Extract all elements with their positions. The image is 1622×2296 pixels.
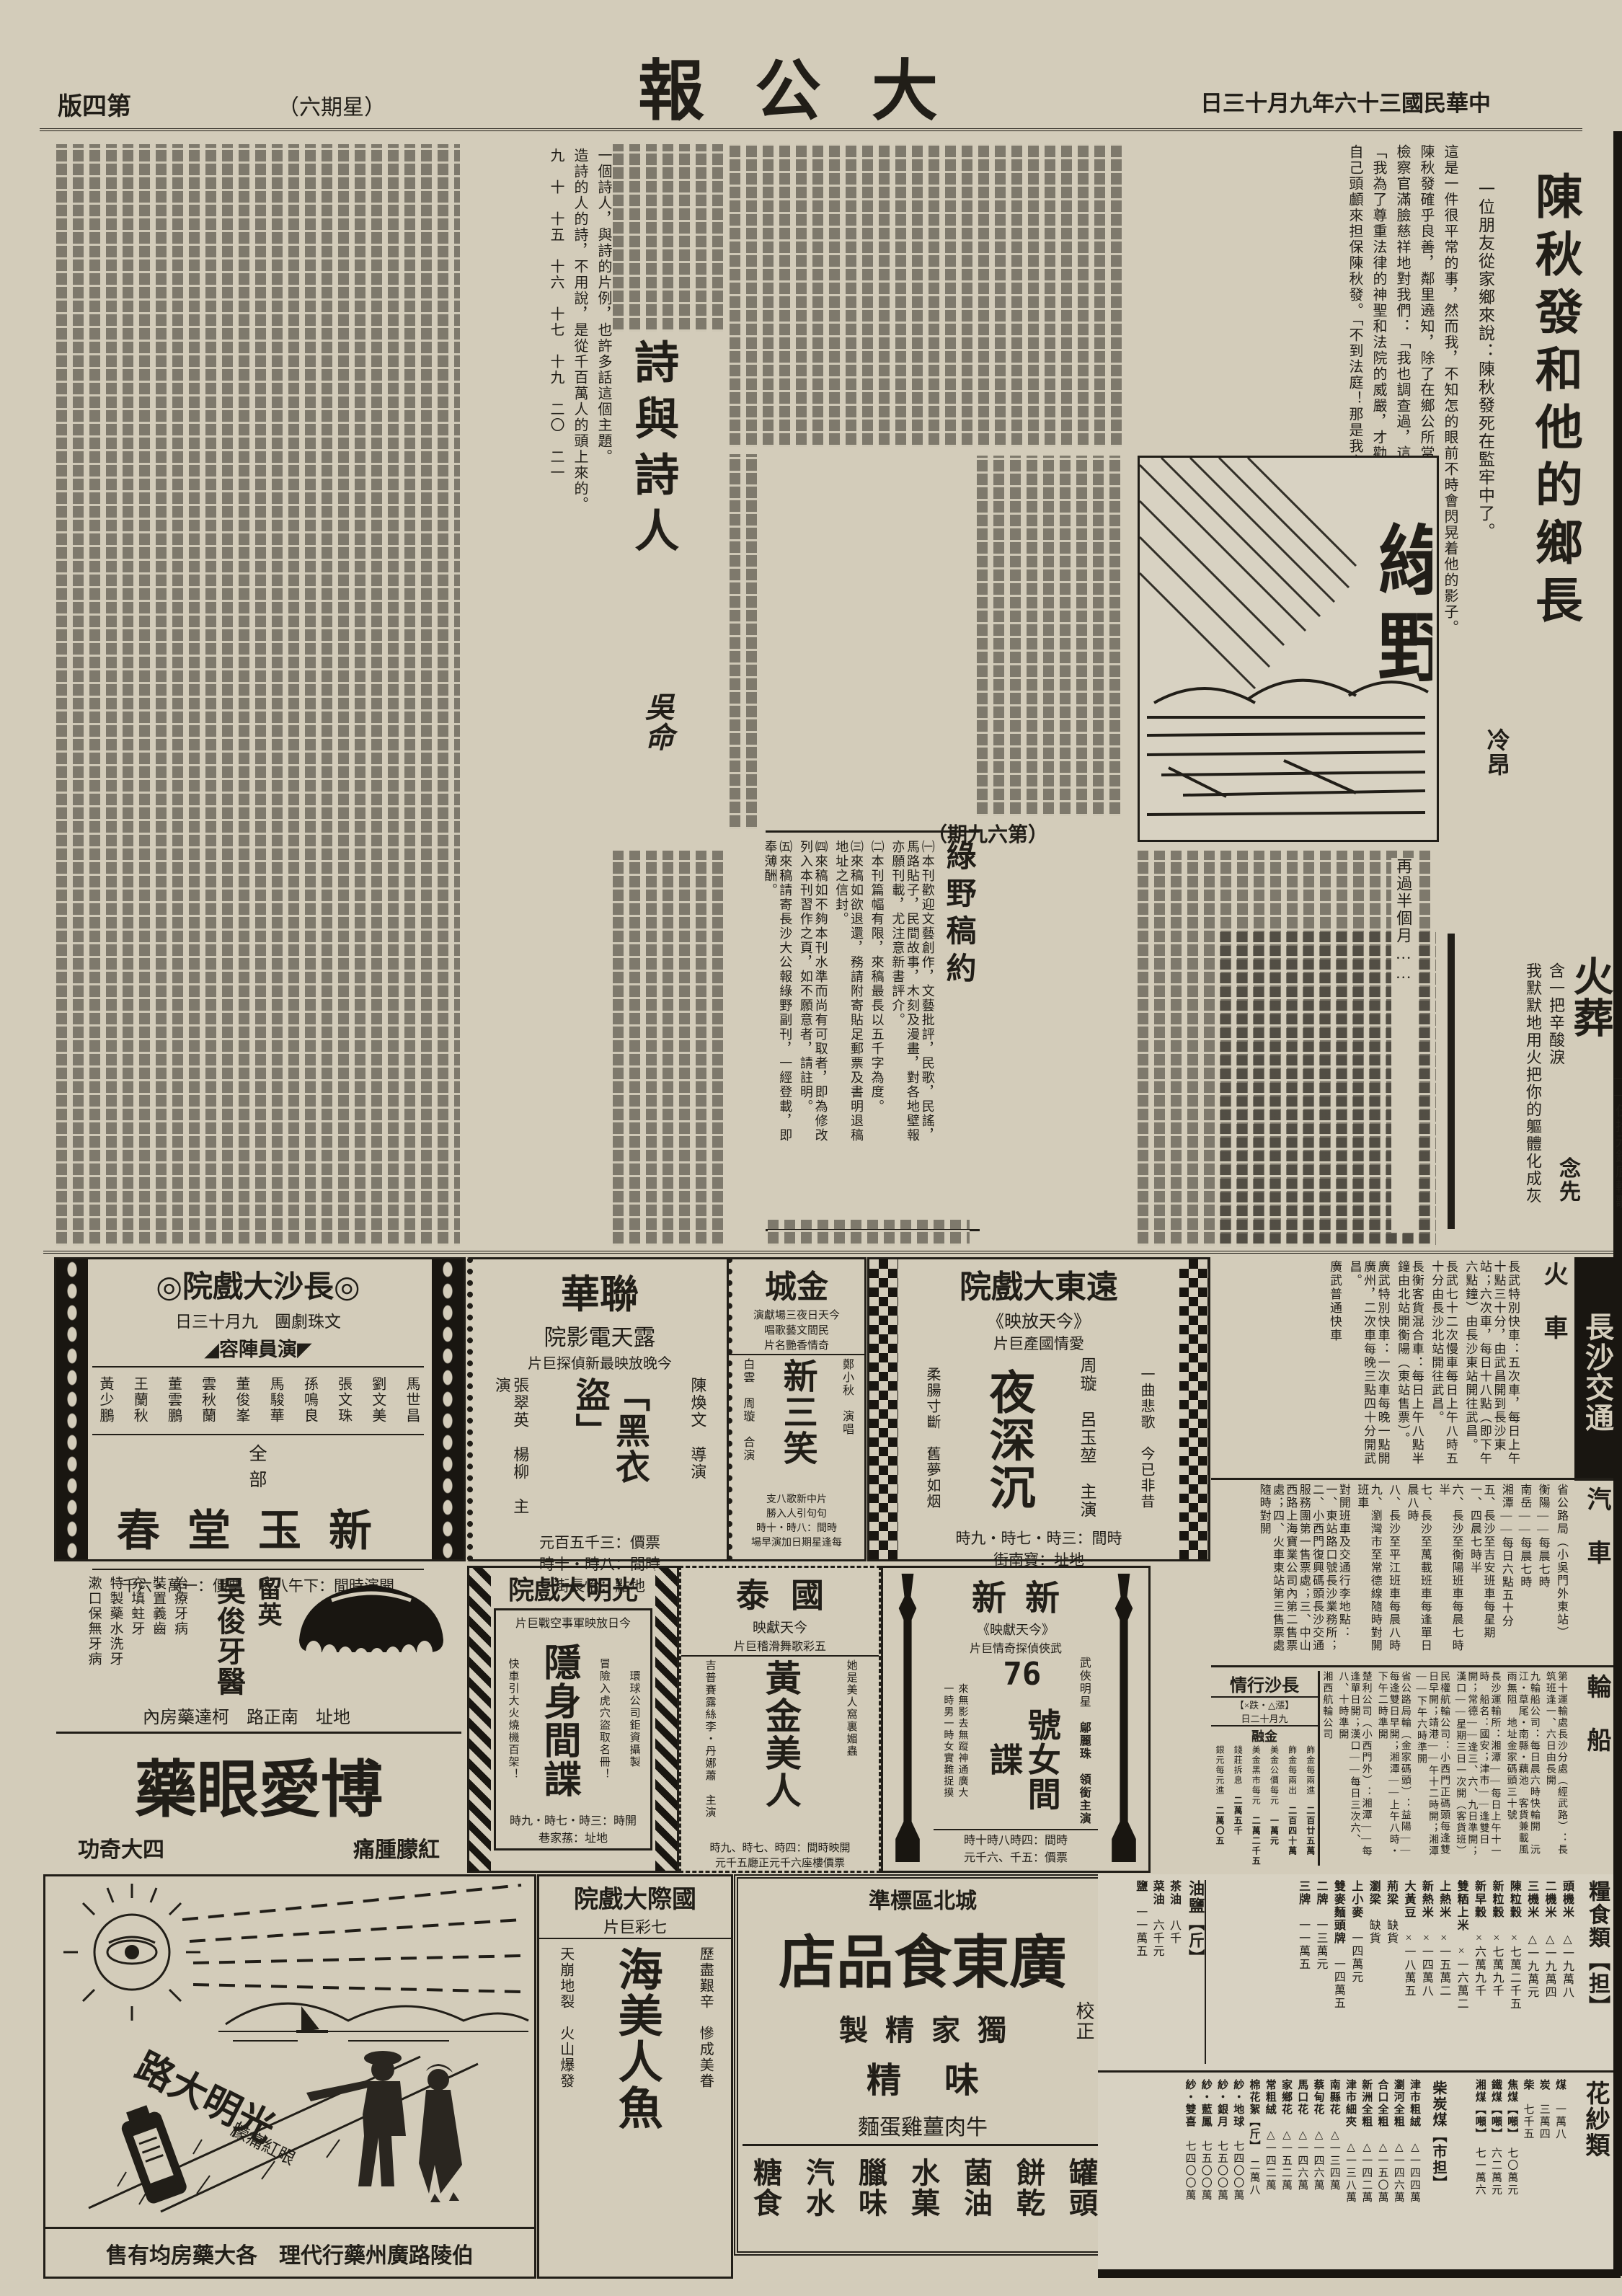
cast-member: 董俊峯 xyxy=(233,1372,249,1428)
commodity-price: ×一四萬八 xyxy=(1420,1932,1432,1998)
tagline: 民間文藝歌唱 xyxy=(729,1322,864,1337)
finance-entry-label: 錢莊拆息 xyxy=(1233,1745,1243,1786)
finance-entry-value: 一萬元 xyxy=(1269,1816,1279,1846)
poem-author-huozang: 念先 xyxy=(1555,1157,1580,1222)
ship-schedule-item: 第十運輸處長沙分處（經武路）：長筑班逢一、六日由長開 xyxy=(1544,1671,1567,1863)
commodity-name: 炭 xyxy=(1538,2079,1550,2091)
stars-credit: 白雲 周璇 合演 xyxy=(740,1358,753,1488)
cast-list: 馬世昌劉文美張文珠孫鳴良馬駿華董俊峯雲秋蘭董雲鵬王蘭秋黃少鵬 xyxy=(92,1372,424,1430)
commodity-name: 合口全粗 xyxy=(1377,2079,1388,2128)
commodity-price: 七一萬六 xyxy=(1474,2147,1486,2197)
commodity-name: 紗・藍鳳 xyxy=(1200,2079,1212,2128)
ad-jincheng-cinema: 金城 今天日夜三場獻演 民間文藝歌唱 奇情香艷名片 鄭小秋 演唱 新三笑 白雲 … xyxy=(727,1257,867,1561)
commodity-price: △一四六萬 xyxy=(1296,2128,1308,2191)
boai-product-name: 博愛眼藥 xyxy=(56,1739,461,1829)
bus-schedule-item: 七、長沙至萬載班車每逢單日晨八時 xyxy=(1404,1484,1431,1658)
film-note: 快車引大火燒機百架！ xyxy=(506,1631,518,1807)
troupe-and-date: 文珠劇團 九月十三日 xyxy=(92,1308,424,1332)
extra-showing-note: 每逢星期日加演早場 xyxy=(729,1535,864,1549)
stars-credit: 吉普賽露絲李・丹娜蕭 主演 xyxy=(703,1659,715,1836)
commodity-price: 八千 xyxy=(1168,1919,1180,1945)
commodity-price: 缺貨 xyxy=(1385,1919,1397,1945)
genre-label: 五彩歌舞滑稽巨片 xyxy=(681,1636,879,1657)
oil-price-entry: 茶油 八千 xyxy=(1167,1880,1180,2059)
ad-guangming-theatre: 光明大戲院 今日放映軍事空戰巨片 環球公司鉅資攝製 冒險入虎穴盜取名冊！ 隱身間… xyxy=(467,1566,679,1873)
store-specialty: 牛肉薑雞蛋麵 xyxy=(743,2109,1103,2146)
divider xyxy=(1211,1665,1613,1667)
ad-boai-illustration: 光明大路 眼紅痛朦 伯陵路廣州藥行代理 各大藥房均有售 xyxy=(43,1874,536,2279)
commodity-price: ×七萬九千 xyxy=(1490,1932,1502,1998)
commodity-name: 瀏梁 xyxy=(1368,1880,1380,1906)
dense-text-filler xyxy=(730,454,762,829)
commodity-price: 一三萬元 xyxy=(1315,1919,1327,1971)
divider xyxy=(92,1366,424,1368)
ad-changsha-theatre: ◎長沙大戲院◎ 文珠劇團 九月十三日 ◤演員陣容◢ 馬世昌劉文美張文珠孫鳴良馬駿… xyxy=(54,1257,466,1561)
dentist-service-item: 治療牙病 xyxy=(172,1576,187,1697)
commodity-name: 雙麥麵頭牌 xyxy=(1332,1880,1344,1945)
chen-continuation-column: 再過半個月…… xyxy=(1391,858,1415,1233)
boai-claim-left: 四大奇功 xyxy=(78,1832,164,1863)
theatre-name-text: 長沙大戲院 xyxy=(182,1271,334,1304)
cinema-name-jincheng: 金城 xyxy=(765,1269,828,1305)
film-tagline: 歷盡艱辛 慘成美眷 xyxy=(696,1946,713,2249)
commodity-price: 一四萬元 xyxy=(1350,1932,1362,1984)
cinema-name-guotai: 國泰 xyxy=(714,1577,846,1614)
luye-rule-item: ㈡本刊篇幅有限，來稿最長以五千字為度。 xyxy=(869,840,885,1150)
film-note: 環球公司鉅資攝製 xyxy=(627,1631,639,1807)
stars-credit: 周璇 呂玉堃 主演 xyxy=(1077,1357,1096,1519)
newspaper-page: 第四版 （星期六） 大公報 中華民國三十六年九月十三日 陳秋發和他的鄉長 一位朋… xyxy=(0,0,1622,2296)
commodity-name: 常粗絨 xyxy=(1264,2079,1276,2116)
finance-list: 飾金每兩進 二百廿五萬 飾金每兩出 二百四十萬 美金公價每元 一萬元 美金黑市每… xyxy=(1211,1745,1318,1868)
film-title-heiyidao: 「黑衣盜」 xyxy=(569,1377,648,1528)
star-credit: 鄭小秋 演唱 xyxy=(840,1358,853,1488)
store-item: 臘味 xyxy=(854,2158,887,2250)
ticket-price: 票價：五千、六千元 xyxy=(934,1848,1098,1865)
theatre-name-guangming: 光明大戲院 xyxy=(508,1576,638,1605)
commodity-price: 三萬四 xyxy=(1538,2104,1550,2140)
store-item: 菌油 xyxy=(959,2158,992,2250)
luye-rules-list: 綠野稿約 ㈠本刊歡迎文藝創作，文藝批評，民歌，民謠，馬路貼子，民間故事，木刻及漫… xyxy=(770,840,975,1200)
cast-member: 雲秋蘭 xyxy=(199,1372,216,1428)
cast-member: 馬駿華 xyxy=(267,1372,283,1428)
article-title-chen-qiufa: 陳秋發和他的鄉長 xyxy=(1527,172,1582,763)
statue-ornament xyxy=(887,1574,928,1862)
fuel-section-label: 柴炭煤【市担】 xyxy=(1430,2080,1446,2253)
market-title: 長沙行情 xyxy=(1211,1671,1318,1698)
grain-price-entry: 新粒穀 ×七萬九千 xyxy=(1489,1880,1502,2062)
film-title-text: 號女間諜 xyxy=(984,1693,1060,1826)
ship-schedule-item: 湘西航輪公司 xyxy=(1321,1671,1332,1863)
train-schedule-list: 長武特別快車：五次車，每日上午十點三十分，由武昌開到長沙東站；六次車，每日十八點… xyxy=(1217,1260,1520,1473)
dentist-address: 地址 南正路 柯達藥房內 xyxy=(143,1703,350,1728)
commodity-name: 雙粞上米 xyxy=(1455,1880,1468,1932)
ad-border-ornament xyxy=(1179,1259,1208,1559)
weekday-label: （星期六） xyxy=(278,89,386,121)
cotton-price-entry: 棉花絮【斤】 二萬八 xyxy=(1247,2079,1259,2258)
film-tagline: 她是美人窩裏媚蟲 xyxy=(844,1659,856,1836)
finance-entry-label: 美金公價每元 xyxy=(1269,1745,1279,1806)
film-title-mermaid: 海美人魚 xyxy=(609,1946,660,2256)
finance-entry-label: 美金黑市每元 xyxy=(1251,1745,1261,1806)
dentist-credential: 留英 xyxy=(253,1576,281,1662)
market-legend: 【漲△・跌×】 xyxy=(1211,1698,1318,1711)
finance-entry-value: 二萬五千 xyxy=(1233,1796,1243,1836)
store-item: 汽水 xyxy=(801,2158,834,2250)
grain-price-entry: 新早穀 ×六萬九千 xyxy=(1472,1880,1485,2062)
cotton-price-entry: 津市粗絨 △一四四萬 xyxy=(1408,2079,1420,2258)
genre-label: 愛情國產巨片 xyxy=(903,1332,1175,1354)
finance-entry-value: 二萬二千五 xyxy=(1251,1816,1261,1866)
cotton-price-entry: 津市細夾 △一三八萬 xyxy=(1344,2079,1356,2258)
dentist-service-item: 充填蛀牙 xyxy=(128,1576,144,1697)
finance-entry: 飾金每兩進 二百廿五萬 xyxy=(1305,1745,1315,1866)
commodity-name: 家鄉花 xyxy=(1280,2079,1292,2116)
commodity-price: △一五二萬 xyxy=(1280,2128,1292,2191)
cotton-price-entry: 常粗絨 △一四二萬 xyxy=(1264,2079,1276,2258)
grain-price-entry: 二牌 一三萬元 xyxy=(1313,1880,1326,2062)
cotton-section-label: 花紗類 xyxy=(1581,2080,1609,2253)
grain-price-entry: 頭機米 △一九萬八 xyxy=(1560,1880,1573,2062)
commodity-price: △一三四萬 xyxy=(1329,2128,1340,2191)
ad-lianhua-cinema: 聯華 露天電影院 今晚放映最新偵探巨片 陳煥文 導演 「黑衣盜」 張翠英 楊柳 … xyxy=(467,1257,732,1561)
cotton-price-entry: 紗・銀月 七五〇〇萬 xyxy=(1215,2079,1228,2258)
luye-title-char-lv: 綠 xyxy=(1378,520,1432,604)
chen-body-column: 這是一件很平常的事，然而我，不知怎的眼前不時會閃晃着他的影子。 xyxy=(1441,144,1458,908)
showtimes: 時間：四時八時十時 xyxy=(934,1829,1098,1848)
dentist-name: 吳俊牙醫 xyxy=(212,1576,245,1713)
commodity-price: 缺貨 xyxy=(1368,1919,1380,1945)
commodity-price: △一九萬四 xyxy=(1543,1932,1556,1999)
ad-fareast-theatre: 遠東大戲院 《今天放映》 愛情國產巨片 一曲悲歌 今已非昔 周璇 呂玉堃 主演 … xyxy=(867,1257,1210,1561)
store-item: 水菓 xyxy=(906,2158,939,2250)
commodity-name: 蔡甸花 xyxy=(1313,2079,1324,2116)
cotton-price-entry: 蔡甸花 △一四六萬 xyxy=(1311,2079,1324,2258)
cotton-price-entry: 合口全粗 △一五〇萬 xyxy=(1375,2079,1388,2258)
commodity-name: 瀏河全粗 xyxy=(1393,2079,1404,2128)
page-number: 第四版 xyxy=(58,87,131,122)
luye-masthead-illustration: 綠 野 xyxy=(1138,456,1439,842)
grain-price-entry: 大黃豆 ×一八萬五 xyxy=(1401,1880,1414,2062)
commodity-price: 七〇萬元 xyxy=(1506,2147,1517,2197)
transport-banner-title: 長沙交通 xyxy=(1574,1257,1613,1481)
commodity-name: 菜油 xyxy=(1151,1880,1164,1906)
finance-entry-label: 飾金每兩進 xyxy=(1306,1745,1316,1796)
oil-price-entry: 菜油 六千元 xyxy=(1150,1880,1163,2059)
bus-schedule-item: 湘潭——每日六點五十分 xyxy=(1499,1484,1512,1658)
finance-entry: 美金公價每元 一萬元 xyxy=(1269,1745,1279,1866)
commodity-price: 一一萬五 xyxy=(1297,1919,1309,1971)
store-item: 罐頭 xyxy=(1064,2158,1097,2250)
dentist-service-item: 漱口保無牙病 xyxy=(86,1576,102,1697)
finance-entry: 飾金每兩出 二百四十萬 xyxy=(1287,1745,1297,1866)
ship-schedule-item: 長沙運輸所：湘潭——每日上午十一時 船名：國安；津市——逢雙日開；常德——逢三、… xyxy=(1454,1671,1500,1863)
theatre-name-fareast: 遠東大戲院 xyxy=(960,1269,1118,1305)
commodity-price: ×一五萬二 xyxy=(1437,1932,1450,1998)
transport-ship-label: 輪船 xyxy=(1582,1674,1610,1864)
grain-section-label: 糧食類【担】 xyxy=(1585,1880,1610,2060)
venue-label: 露天電影院 xyxy=(473,1319,727,1352)
cotton-price-entry: 南縣花 △一三四萬 xyxy=(1328,2079,1340,2258)
store-district-label: 城北區標準 xyxy=(869,1889,977,1913)
ornament-flower: ◎ xyxy=(156,1271,182,1304)
ship-schedule-item: 九輪船公司：每日晨六時快輪開 沅江・草尾・南縣・藕池 客貨兼載風雨無阻 地址金家… xyxy=(1505,1671,1540,1863)
bus-schedule-item: 八、長沙至平江班車每晨八時 xyxy=(1386,1484,1399,1658)
commodity-name: 紗・銀月 xyxy=(1216,2079,1228,2128)
commodity-price: ×七萬二千五 xyxy=(1508,1932,1520,2011)
star-label: 武俠明星 xyxy=(1078,1657,1090,1708)
commodity-price: △一四六萬 xyxy=(1393,2140,1404,2204)
dentist-service-item: 裝置義齒 xyxy=(150,1576,166,1697)
cotton-price-entry: 瀏河全粗 △一四六萬 xyxy=(1392,2079,1404,2258)
commodity-name: 津市粗絨 xyxy=(1409,2079,1420,2128)
commodity-name: 三機米 xyxy=(1525,1880,1538,1919)
film-note: 句句引人入勝 xyxy=(729,1506,864,1520)
fuel-price-entry: 炭 三萬四 xyxy=(1538,2079,1550,2258)
grain-price-entry: 上小麥 一四萬元 xyxy=(1349,1880,1362,2062)
dense-text-filler xyxy=(613,851,727,1246)
film-title-spy76: 76 號女間諜 xyxy=(984,1656,1060,1826)
director-credit: 陳煥文 導演 xyxy=(688,1377,706,1521)
ship-schedule-item: 楚利公司（小西門外）：湘潭——每逢單日開；漢口——每日三次六、八、十時準開 xyxy=(1337,1671,1371,1863)
poetry-body-column: 造詩的人的詩，不用說，是從千百萬人的頭上來的。 xyxy=(571,148,588,1229)
train-schedule-item: 廣武普通快車 xyxy=(1327,1260,1342,1469)
commodity-price: 七五〇〇萬 xyxy=(1216,2140,1228,2202)
film-note: 冒險入虎穴盜取名冊！ xyxy=(598,1631,610,1807)
ad-cantonese-food-store: 城北區標準 廣東食品店 校正 獨家精製 味精 牛肉薑雞蛋麵 罐頭餅乾菌油水菓臘味… xyxy=(734,1874,1112,2256)
film-tagline: 來無影去無蹤神通廣大 xyxy=(956,1656,967,1825)
commodity-name: 新粒穀 xyxy=(1490,1880,1502,1919)
article-body-poetry: 一個詩人，與詩的片例，也許多話這個主題。 造詩的人的詩，不用說，是從千百萬人的頭… xyxy=(467,148,611,1244)
genre-label: 七彩巨片 xyxy=(539,1915,731,1939)
dentist-service-item: 特製藥水洗牙 xyxy=(107,1576,123,1697)
oil-price-entry: 鹽 一一萬五 xyxy=(1133,1880,1146,2059)
ad-border-ornament xyxy=(469,1568,491,1871)
store-name: 廣東食品店 xyxy=(743,1916,1103,2000)
cotton-price-entry: 新洲全粗 △一四二萬 xyxy=(1360,2079,1372,2258)
commodity-name: 棉花絮【斤】 xyxy=(1249,2079,1260,2147)
cinema-name-xinxin: 新新 xyxy=(953,1579,1078,1618)
film-title-xinsanxiao: 新三笑 xyxy=(776,1358,816,1491)
article-title-poetry: 詩與詩人 xyxy=(626,339,677,678)
genre-label: 武俠偵探奇情巨片 xyxy=(934,1639,1098,1656)
luye-rule-item: ㈢來稿如欲退還，務請附寄貼足郵票及書明退稿地址之信封。 xyxy=(834,840,864,1150)
publication-date: 中華民國三十六年九月十三日 xyxy=(1200,85,1491,118)
luye-illustration-art: 綠 野 xyxy=(1140,458,1432,835)
commodity-price: △一五〇萬 xyxy=(1377,2140,1388,2204)
address-line: 地址：蓀家巷 xyxy=(497,1828,649,1845)
commodity-price: 一四萬五 xyxy=(1332,1958,1344,2010)
film-tagline: 一曲悲歌 今已非昔 xyxy=(1138,1357,1154,1519)
showtimes: 時間：三時・七時・九時 xyxy=(903,1527,1175,1548)
ad-border-ornament xyxy=(655,1568,677,1871)
grain-price-entry: 三機米 △一九萬元 xyxy=(1525,1880,1538,2062)
grain-price-entry: 新熱米 ×一四萬八 xyxy=(1419,1880,1432,2062)
band1-separator xyxy=(43,1251,1615,1254)
commodity-name: 陳粒穀 xyxy=(1508,1880,1520,1919)
commodity-name: 鐵煤【噸】 xyxy=(1490,2079,1502,2135)
train-schedule-item: 長武特別快車：五次車，每日上午十點三十分，由武昌開到長沙東站；六次車，每日十八點… xyxy=(1463,1260,1520,1469)
theatre-name-changsha: ◎長沙大戲院◎ xyxy=(92,1262,424,1306)
grain-price-entry: 瀏梁 缺貨 xyxy=(1366,1880,1379,2062)
header-band: 第四版 （星期六） 大公報 中華民國三十六年九月十三日 xyxy=(40,0,1582,131)
boai-agent-line: 伯陵路廣州藥行代理 各大藥房均有售 xyxy=(45,2227,534,2269)
poem-line: 含一把辛酸淚 xyxy=(1547,962,1565,1121)
commodity-price: ×六萬九千 xyxy=(1473,1932,1485,1998)
commodity-price: 七千五 xyxy=(1523,2104,1534,2140)
grain-price-entry: 雙麥麵頭牌 一四萬五 xyxy=(1331,1880,1344,2062)
tagline: 奇情香艷名片 xyxy=(729,1337,864,1355)
oil-salt-panel: 油鹽【斤】 茶油 八千 菜油 六千元 鹽 一一萬五 xyxy=(1104,1880,1206,2064)
cotton-price-entry: 家鄉花 △一五二萬 xyxy=(1280,2079,1292,2258)
showtimes: 時間：八時・十時 xyxy=(729,1520,864,1535)
stars-credit: 張翠英 楊柳 主演 xyxy=(493,1377,530,1521)
commodity-price: 六千元 xyxy=(1151,1919,1164,1958)
poem-title-huozang: 火葬 xyxy=(1566,955,1613,1085)
fuel-price-entry: 焦煤【噸】 七〇萬元 xyxy=(1505,2079,1517,2258)
commodity-price: △一四六萬 xyxy=(1313,2128,1324,2191)
fuel-price-list: 煤 一萬八 炭 三萬四 柴 七千五 焦煤【噸】 七〇萬元 鐵煤【噸】 六二萬元 xyxy=(1450,2079,1566,2259)
commodity-name: 茶油 xyxy=(1168,1880,1180,1906)
bus-schedule-item: 省公路局（小吳門外東站） xyxy=(1554,1484,1567,1658)
ticket-price: 票價樓座六千元正廳五千元 xyxy=(681,1855,879,1870)
ornament-flower: ◎ xyxy=(334,1271,360,1304)
commodity-name: 紗・雙喜 xyxy=(1184,2079,1196,2128)
finance-entry: 美金黑市每元 二萬二千五 xyxy=(1250,1745,1260,1866)
luye-rule-item: ㈠本刊歡迎文藝創作，文藝批評，民歌，民謠，馬路貼子，民間故事，木刻及漫畫，對各地… xyxy=(890,840,935,1150)
commodity-price: 一萬八 xyxy=(1554,2104,1566,2140)
cast-member: 黃少鵬 xyxy=(97,1372,113,1428)
divider xyxy=(92,1434,424,1435)
cotton-price-entry: 馬口花 △一四六萬 xyxy=(1295,2079,1308,2258)
train-schedule-item: 廣武特別快車：一次車每晚一點開廣州，二次車每晚三點四十分開武昌。 xyxy=(1347,1260,1390,1469)
commodity-name: 馬口花 xyxy=(1296,2079,1308,2116)
transport-bus-label: 汽車 xyxy=(1582,1486,1610,1659)
poem-huozang: 火葬 ——伍拾元鈔底輓歌 含一把辛酸淚 我默默地用火把你的軀體化成灰 念先 xyxy=(1448,934,1622,1229)
commodity-name: 柴 xyxy=(1523,2079,1534,2091)
store-item: 餅乾 xyxy=(1011,2158,1045,2250)
poem-subtitle-huozang: ——伍拾元鈔底輓歌 xyxy=(1613,1071,1622,1229)
bus-schedule-item: 六、長沙至衡陽班車每晨七時半 xyxy=(1436,1484,1463,1658)
cast-member: 董雲鵬 xyxy=(164,1372,181,1428)
commodity-price: 七五〇〇萬 xyxy=(1200,2140,1212,2202)
finance-entry-value: 二百廿五萬 xyxy=(1306,1806,1316,1856)
poetry-body-column: 一個詩人，與詩的片例，也許多話這個主題。 xyxy=(595,148,611,1229)
commodity-price: 六二萬元 xyxy=(1490,2147,1502,2197)
theatre-name-international: 國際大戲院 xyxy=(574,1887,696,1913)
grain-price-entry: 三牌 一一萬五 xyxy=(1296,1880,1309,2062)
ship-schedule-item: 民權航輪公司：小西門正碼頭每逢雙日早開；靖港——午十二時開；湘潭——下午六時準開 xyxy=(1415,1671,1450,1863)
dense-text-filler xyxy=(1138,851,1433,1246)
divider xyxy=(1211,1478,1613,1480)
commodity-name: 二機米 xyxy=(1543,1880,1556,1919)
oil-price-list: 茶油 八千 菜油 六千元 鹽 一一萬五 xyxy=(1104,1880,1180,2060)
film-title-huangjin: 黃金美人 xyxy=(759,1659,801,1840)
store-items-list: 罐頭餅乾菌油水菓臘味汽水糖食 xyxy=(743,2158,1103,2251)
bus-schedule-item: 衡陽——每晨七時 xyxy=(1535,1484,1548,1658)
divider xyxy=(1098,2070,1613,2073)
commodity-name: 荊梁 xyxy=(1385,1880,1397,1906)
showtimes: 開時：三時・七時・九時 xyxy=(497,1811,649,1828)
ad-border-ornament xyxy=(56,1259,88,1559)
bus-schedule-item: 九、瀏灣市至常德線隨時對開班車 xyxy=(1355,1484,1381,1658)
finance-entry: 銀元每元進 二萬〇五 xyxy=(1214,1745,1224,1866)
today-label: 今天獻映 xyxy=(681,1617,879,1636)
ad-boai-headline: 博愛眼藥 四大奇功 紅朦腫痛 xyxy=(56,1734,461,1870)
luye-submission-box: 綠野稿約 ㈠本刊歡迎文藝創作，文藝批評，民歌，民謠，馬路貼子，民間故事，木刻及漫… xyxy=(766,830,980,1231)
commodity-name: 鹽 xyxy=(1134,1880,1146,1893)
commodity-price: ×一六萬二 xyxy=(1455,1945,1468,2011)
train-schedule-item: 長衡客貨混合車：每日上午八點半鐘由北站開衡陽（東站售票）。 xyxy=(1396,1260,1424,1469)
oil-section-label: 油鹽【斤】 xyxy=(1187,1880,1205,2060)
film-title-yinshen: 隱身間諜 xyxy=(536,1631,580,1811)
dense-text-filler xyxy=(56,144,460,1246)
star-name: 鄔麗珠 領銜主演 xyxy=(1078,1721,1090,1825)
commodity-name: 新洲全粗 xyxy=(1360,2079,1372,2128)
commodity-price: ×一八萬五 xyxy=(1402,1932,1414,1998)
transport-train-label: 火車 xyxy=(1539,1262,1567,1471)
cotton-price-entry: 紗・雙喜 七四〇〇萬 xyxy=(1183,2079,1195,2258)
commodity-name: 南縣花 xyxy=(1329,2079,1340,2116)
bus-schedule-item: 五、長沙至吉安班車每星期一、四晨七時半 xyxy=(1468,1484,1494,1658)
store-usp-product: 味精 xyxy=(743,2052,1103,2102)
commodity-name: 上熱米 xyxy=(1437,1880,1450,1919)
statue-ornament xyxy=(1104,1574,1144,1862)
cinema-name-lianhua: 聯華 xyxy=(561,1273,639,1316)
cast-member: 張文珠 xyxy=(335,1372,352,1428)
store-corner-note: 校正 xyxy=(1073,2001,1094,2088)
film-tagline: 天崩地裂 火山爆發 xyxy=(557,1946,574,2249)
commodity-price: △一九萬元 xyxy=(1525,1932,1538,1999)
store-usp: 獨家精製 xyxy=(822,2014,1024,2047)
ad-dentist: 留英 吳俊牙醫 治療牙病裝置義齒充填蛀牙特製藥水洗牙漱口保無牙病 地址 南正路 … xyxy=(56,1566,461,1734)
ship-schedule-item: 省公路局輪（金家碼頭）：益陽——每逢雙日早開；湘潭——上午八時・下午二時準開 xyxy=(1376,1671,1411,1863)
dense-text-filler xyxy=(613,144,727,332)
commodity-price: △一四二萬 xyxy=(1264,2128,1276,2191)
fuel-price-entry: 柴 七千五 xyxy=(1521,2079,1533,2258)
ship-schedule-list: 第十運輸處長沙分處（經武路）：長筑班逢一、六日由長開九輪船公司：每日晨六時快輪開… xyxy=(1322,1671,1567,1866)
showtimes: 開映時間：四時、七時、九時 xyxy=(681,1840,879,1855)
article-author-poetry: 吳命 xyxy=(640,692,673,836)
film-note: 片中新歌八支 xyxy=(729,1491,864,1506)
film-tagline: 柔腸寸斷 舊夢如烟 xyxy=(923,1357,940,1519)
film-title-yeshenchen: 夜深沉 xyxy=(982,1357,1035,1522)
bus-schedule-list: 省公路局（小吳門外東站）衡陽——每晨七時南岳——每晨七時湘潭——每日六點五十分五… xyxy=(1214,1484,1567,1661)
commodity-price: △一三八萬 xyxy=(1344,2140,1356,2204)
finance-label: 金融 xyxy=(1211,1725,1318,1745)
commodity-name: 新熱米 xyxy=(1420,1880,1432,1919)
commodity-name: 焦煤【噸】 xyxy=(1506,2079,1517,2135)
today-label: 《今天獻映》 xyxy=(934,1620,1098,1639)
grain-price-entry: 二機米 △一九萬四 xyxy=(1542,1880,1555,2062)
grain-price-entry: 陳粒穀 ×七萬二千五 xyxy=(1507,1880,1520,2062)
masthead: 大公報 xyxy=(638,37,988,133)
commodity-price: △一九萬八 xyxy=(1561,1932,1573,1999)
commodity-name: 上小麥 xyxy=(1350,1880,1362,1919)
commodity-name: 紗・地球 xyxy=(1232,2079,1244,2128)
commodity-name: 二牌 xyxy=(1315,1880,1327,1906)
ad-guotai-cinema: 國泰 今天獻映 五彩歌舞滑稽巨片 她是美人窩裏媚蟲 黃金美人 吉普賽露絲李・丹娜… xyxy=(679,1566,881,1873)
film-tagline: 一時男一時女實難捉摸 xyxy=(941,1656,953,1825)
tagline: 今天日夜三場獻演 xyxy=(729,1307,864,1322)
ad-international-theatre: 國際大戲院 七彩巨片 歷盡艱辛 慘成美眷 海美人魚 天崩地裂 火山爆發 xyxy=(537,1874,733,2279)
market-date: 九月十二日 xyxy=(1211,1711,1318,1725)
cast-member: 劉文美 xyxy=(369,1372,386,1428)
finance-entry-value: 二萬〇五 xyxy=(1215,1806,1225,1846)
boai-claim-right: 紅朦腫痛 xyxy=(353,1832,440,1863)
train-schedule-item: 長武七十二次慢車每日上午八時五十分由長沙北站開往武昌。 xyxy=(1430,1260,1458,1469)
cast-member: 王蘭秋 xyxy=(130,1372,147,1428)
